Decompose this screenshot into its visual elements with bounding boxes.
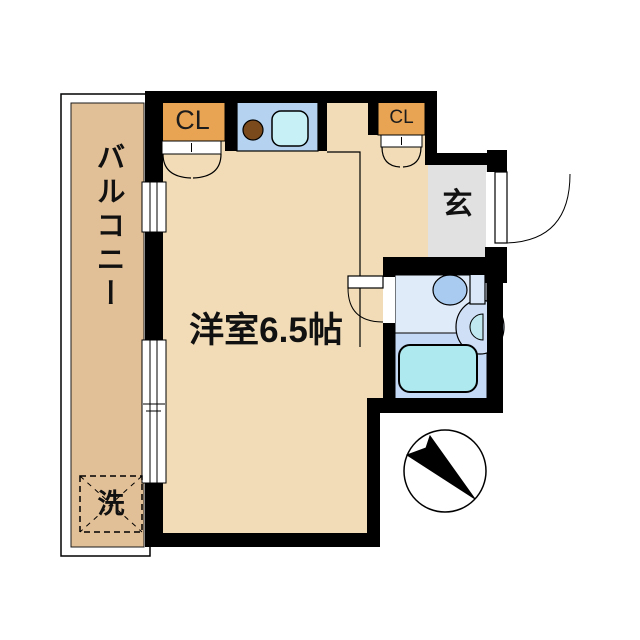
wall-closet-kitchen (225, 91, 237, 151)
wall-closet2-left (368, 91, 378, 135)
burner-icon (243, 120, 263, 140)
wall-closet2-right (425, 91, 437, 165)
entrance-door-leaf (495, 172, 507, 243)
closet-left-label: CL (160, 107, 225, 134)
wall-entrance-right-upper (487, 150, 507, 172)
balcony-label: バルコニー (93, 142, 122, 312)
kitchen-sink-icon (272, 111, 308, 146)
toilet-tank-icon (470, 274, 485, 304)
compass-icon (404, 430, 486, 512)
closet-right-label: CL (378, 108, 425, 127)
washer-label: 洗 (80, 491, 142, 518)
room-label: 洋室6.5帖 (170, 313, 362, 348)
wall-bath-bottom (367, 398, 503, 413)
wall-right-lower (367, 398, 380, 547)
window-upper-icon (142, 182, 166, 232)
entrance-door-arc (503, 174, 570, 243)
floorplan-canvas: 洋室6.5帖 バルコニー 玄 CL CL 洗 (0, 0, 640, 640)
entrance-label: 玄 (428, 190, 487, 220)
wall-top (145, 91, 437, 103)
wall-kitchen-right (318, 91, 327, 151)
wall-bath-right (487, 257, 503, 413)
wall-bottom (145, 533, 380, 547)
bathroom-door-opening (383, 277, 395, 323)
toilet-icon (433, 275, 467, 305)
bathroom-door-leaf (348, 276, 383, 288)
bathtub-icon (399, 345, 477, 392)
